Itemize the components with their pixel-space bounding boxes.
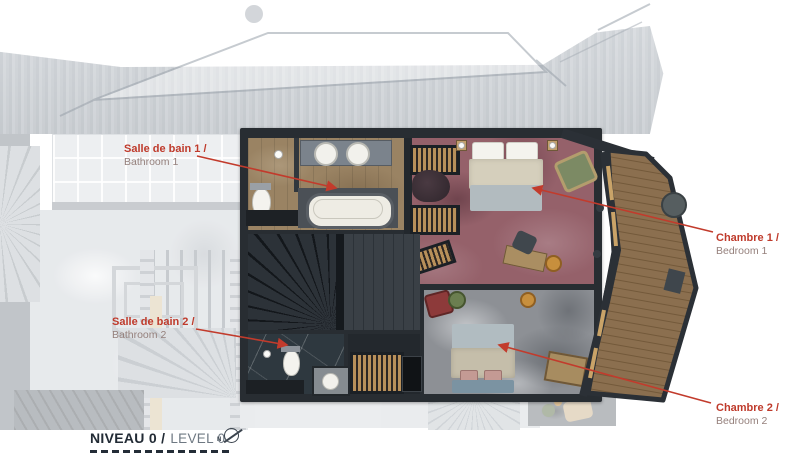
north-compass-icon bbox=[224, 428, 239, 443]
level-title-fr: NIVEAU 0 / bbox=[90, 430, 165, 446]
roof-vent-circle bbox=[245, 5, 263, 23]
deck-planter bbox=[662, 193, 686, 217]
annotation-bathroom-2: Salle de bain 2 / Bathroom 2 bbox=[112, 316, 195, 341]
annotation-label-fr: Salle de bain 1 / bbox=[124, 143, 207, 156]
annotation-label-en: Bedroom 1 bbox=[716, 245, 779, 257]
annotation-label-en: Bedroom 2 bbox=[716, 415, 779, 427]
arrow-bathroom-2 bbox=[196, 329, 287, 345]
title-underline-dashes bbox=[90, 450, 232, 453]
annotation-bedroom-2: Chambre 2 / Bedroom 2 bbox=[716, 402, 779, 427]
annotation-label-en: Bathroom 1 bbox=[124, 156, 207, 168]
north-letter: N bbox=[217, 437, 221, 443]
annotation-label-en: Bathroom 2 bbox=[112, 329, 195, 341]
annotation-label-fr: Chambre 2 / bbox=[716, 402, 779, 415]
arrow-bathroom-1 bbox=[197, 156, 336, 188]
annotation-bedroom-1: Chambre 1 / Bedroom 1 bbox=[716, 232, 779, 257]
annotation-label-fr: Salle de bain 2 / bbox=[112, 316, 195, 329]
plan-overlay bbox=[0, 0, 800, 465]
floor-plan-page: Salle de bain 1 / Bathroom 1 Salle de ba… bbox=[0, 0, 800, 465]
annotation-bathroom-1: Salle de bain 1 / Bathroom 1 bbox=[124, 143, 207, 168]
roof-ridge-outline bbox=[60, 4, 650, 116]
annotation-label-fr: Chambre 1 / bbox=[716, 232, 779, 245]
level-title: NIVEAU 0 /LEVEL 0 bbox=[90, 430, 225, 448]
curtain bbox=[593, 250, 601, 258]
